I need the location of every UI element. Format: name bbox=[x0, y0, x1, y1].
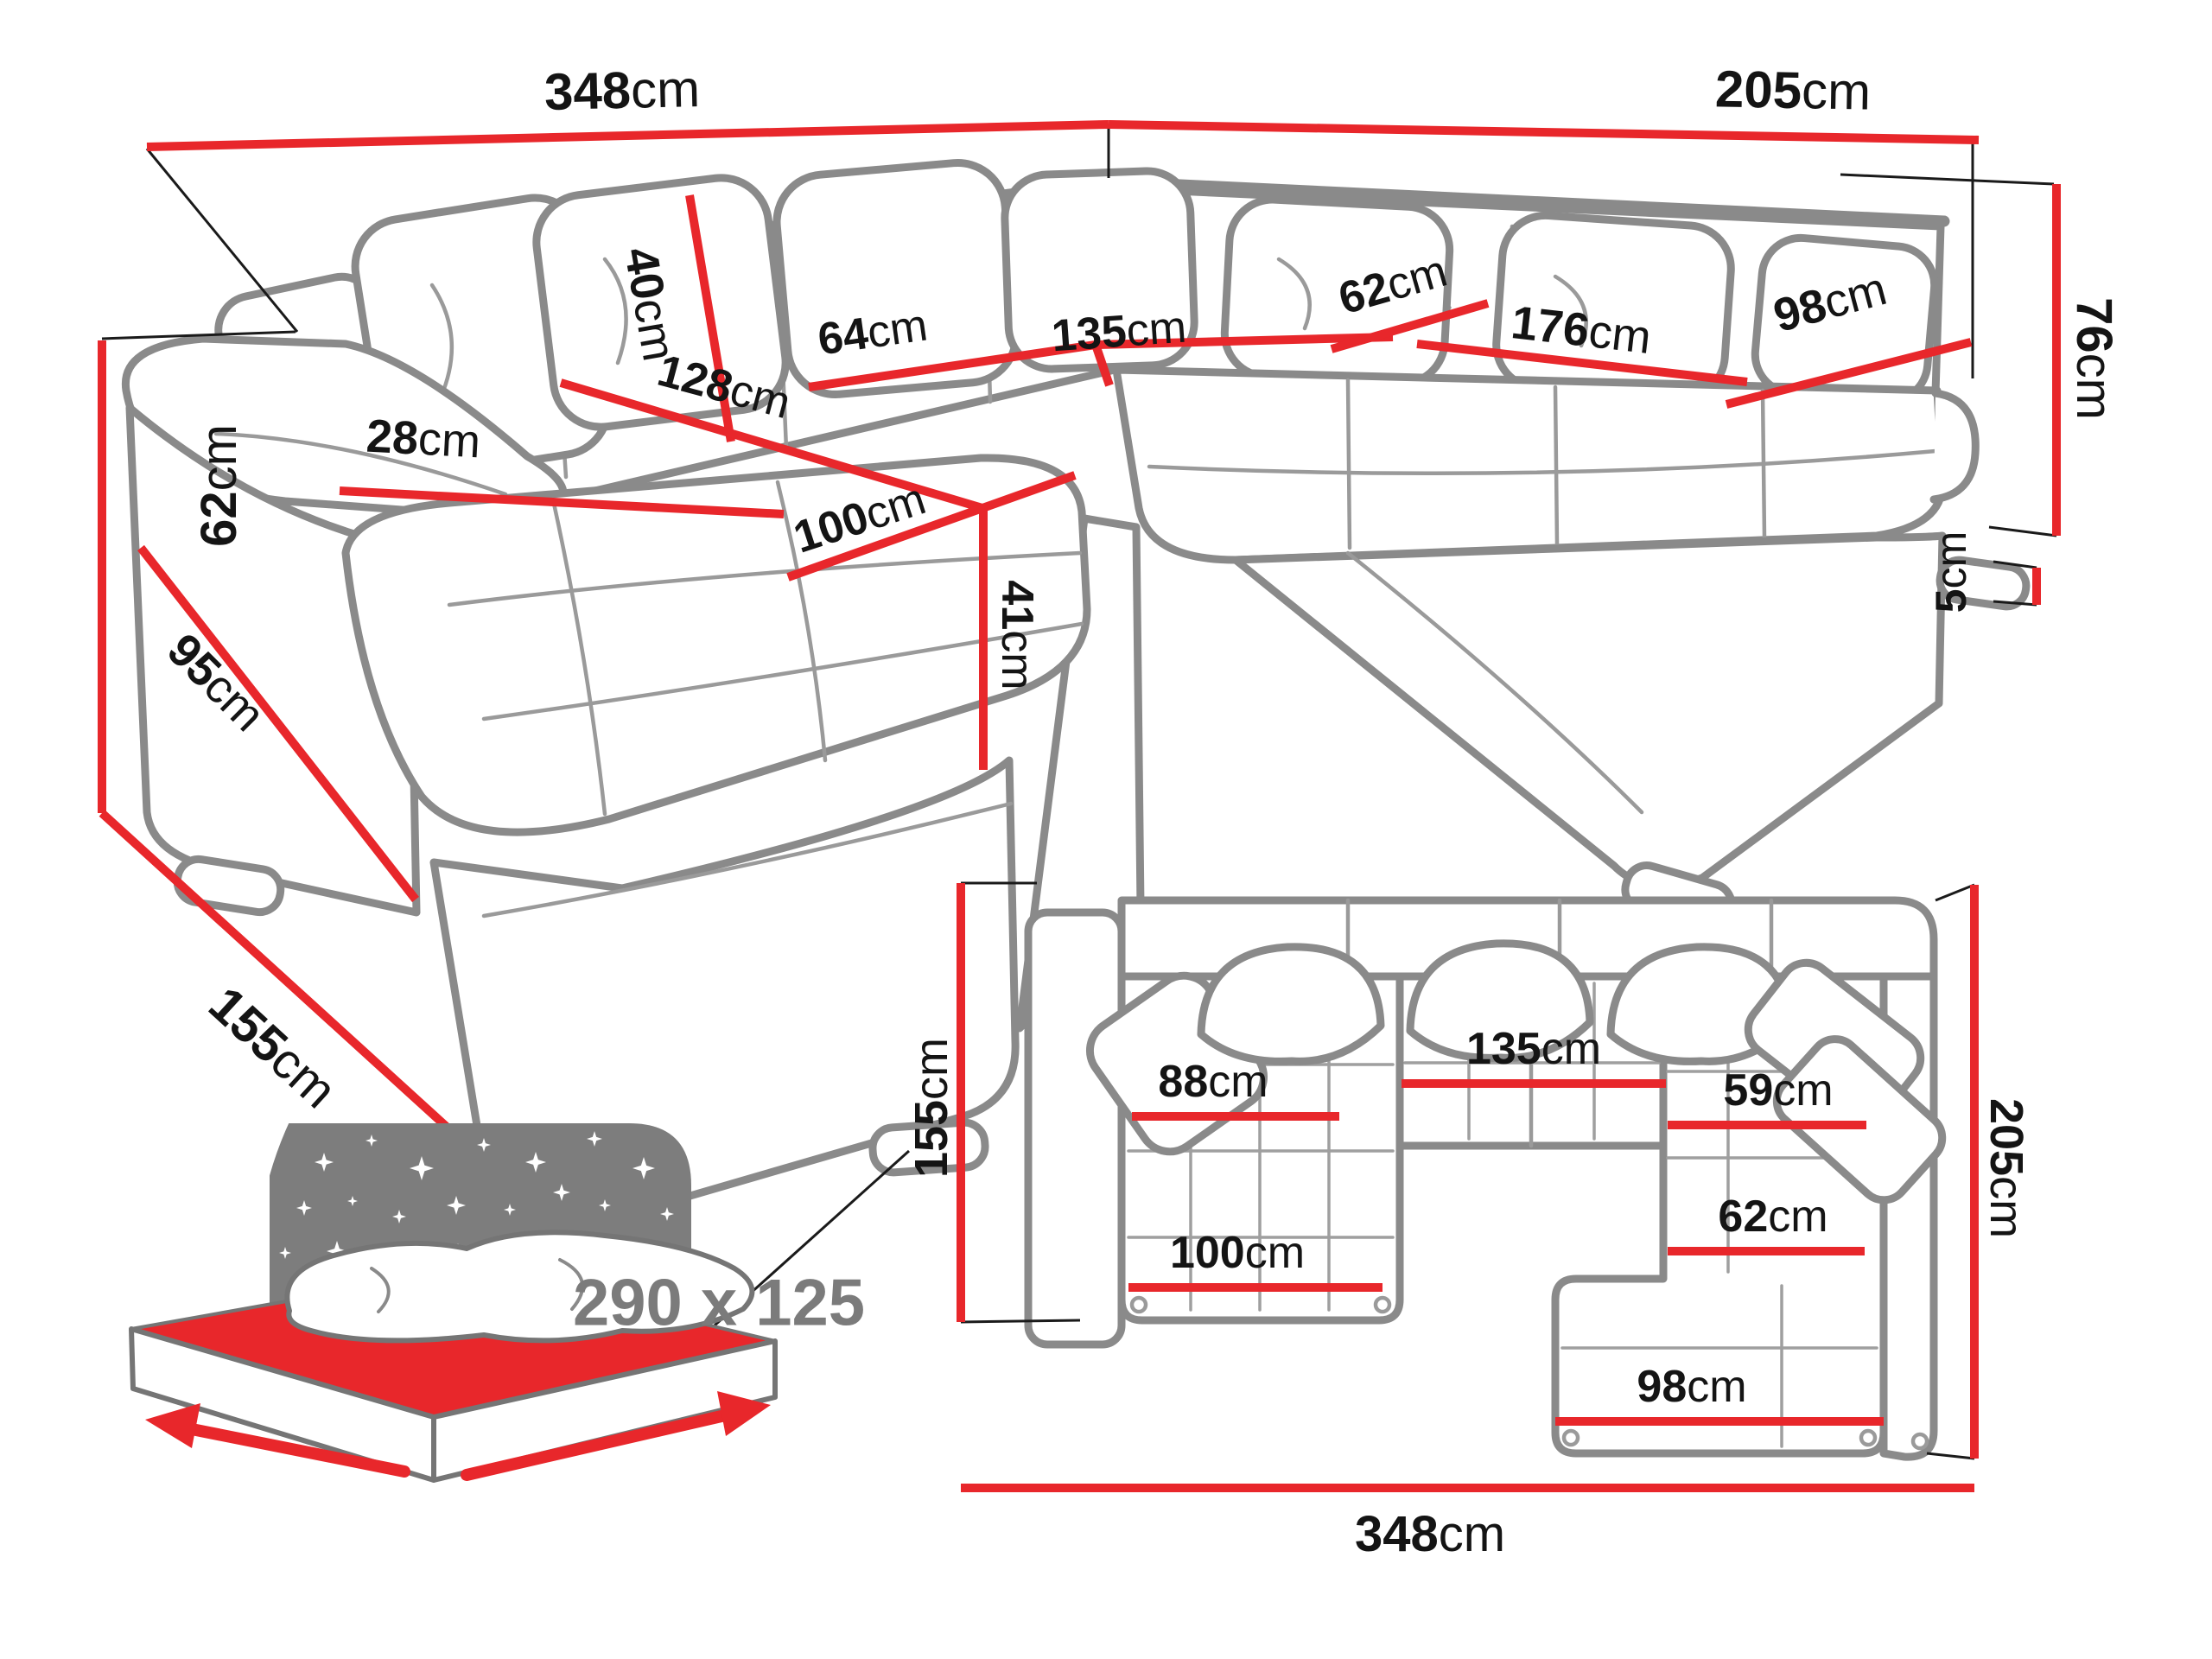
plan-view: 155cm 205cm 348cm 88cm 135cm 59cm 100cm bbox=[906, 883, 2032, 1562]
dimension-label: 88cm bbox=[1158, 1057, 1268, 1107]
dimension-label: 5cm bbox=[1927, 531, 1975, 613]
dimension-label: 62cm bbox=[191, 424, 247, 547]
dimension-348cm-back-width: 348cm bbox=[147, 59, 1109, 147]
dimension-205cm-right-width: 205cm bbox=[1109, 60, 1979, 140]
dimension-label: 76cm bbox=[2067, 297, 2123, 420]
dimension-label: 135cm bbox=[1050, 302, 1188, 362]
right-section bbox=[1116, 370, 2029, 933]
dimension-line bbox=[1109, 124, 1979, 140]
dimension-76cm-back-height: 76cm bbox=[2056, 184, 2123, 536]
plan-dimension-348cm: 348cm bbox=[961, 1488, 1974, 1562]
dimension-line bbox=[147, 124, 1109, 147]
dimension-label: 98cm bbox=[1637, 1362, 1746, 1412]
sofa-plan-drawing bbox=[1028, 900, 1952, 1457]
dimension-label: 135cm bbox=[1466, 1024, 1601, 1074]
right-seat-band bbox=[1116, 370, 1942, 560]
dimension-label: 205cm bbox=[1980, 1098, 2032, 1238]
arrowhead-icon bbox=[145, 1403, 200, 1448]
dimension-label: 59cm bbox=[1723, 1065, 1833, 1116]
dimension-label: 348cm bbox=[543, 59, 701, 120]
right-front-face bbox=[1236, 536, 1942, 886]
dimension-label: 28cm bbox=[365, 410, 481, 468]
dimension-label: 155cm bbox=[906, 1038, 957, 1178]
right-armrest bbox=[1934, 393, 1975, 499]
pillow-icon bbox=[1201, 947, 1381, 1062]
dimension-label: 41cm bbox=[992, 580, 1042, 690]
sleeping-area-size: 290 x 125 bbox=[573, 1267, 865, 1340]
dimension-label: 62cm bbox=[1718, 1192, 1827, 1242]
plan-left-armrest bbox=[1028, 912, 1122, 1344]
dimension-label: 205cm bbox=[1714, 60, 1871, 120]
dimension-diagram-page: 348cm 205cm 76cm 62cm 155cm 95cm 28cm 4 bbox=[0, 0, 2212, 1659]
dimension-label: 155cm bbox=[199, 976, 347, 1119]
dimension-label: 348cm bbox=[1355, 1506, 1505, 1562]
dimension-label: 100cm bbox=[1170, 1228, 1305, 1278]
plan-dimension-205cm: 205cm bbox=[1974, 885, 2032, 1459]
